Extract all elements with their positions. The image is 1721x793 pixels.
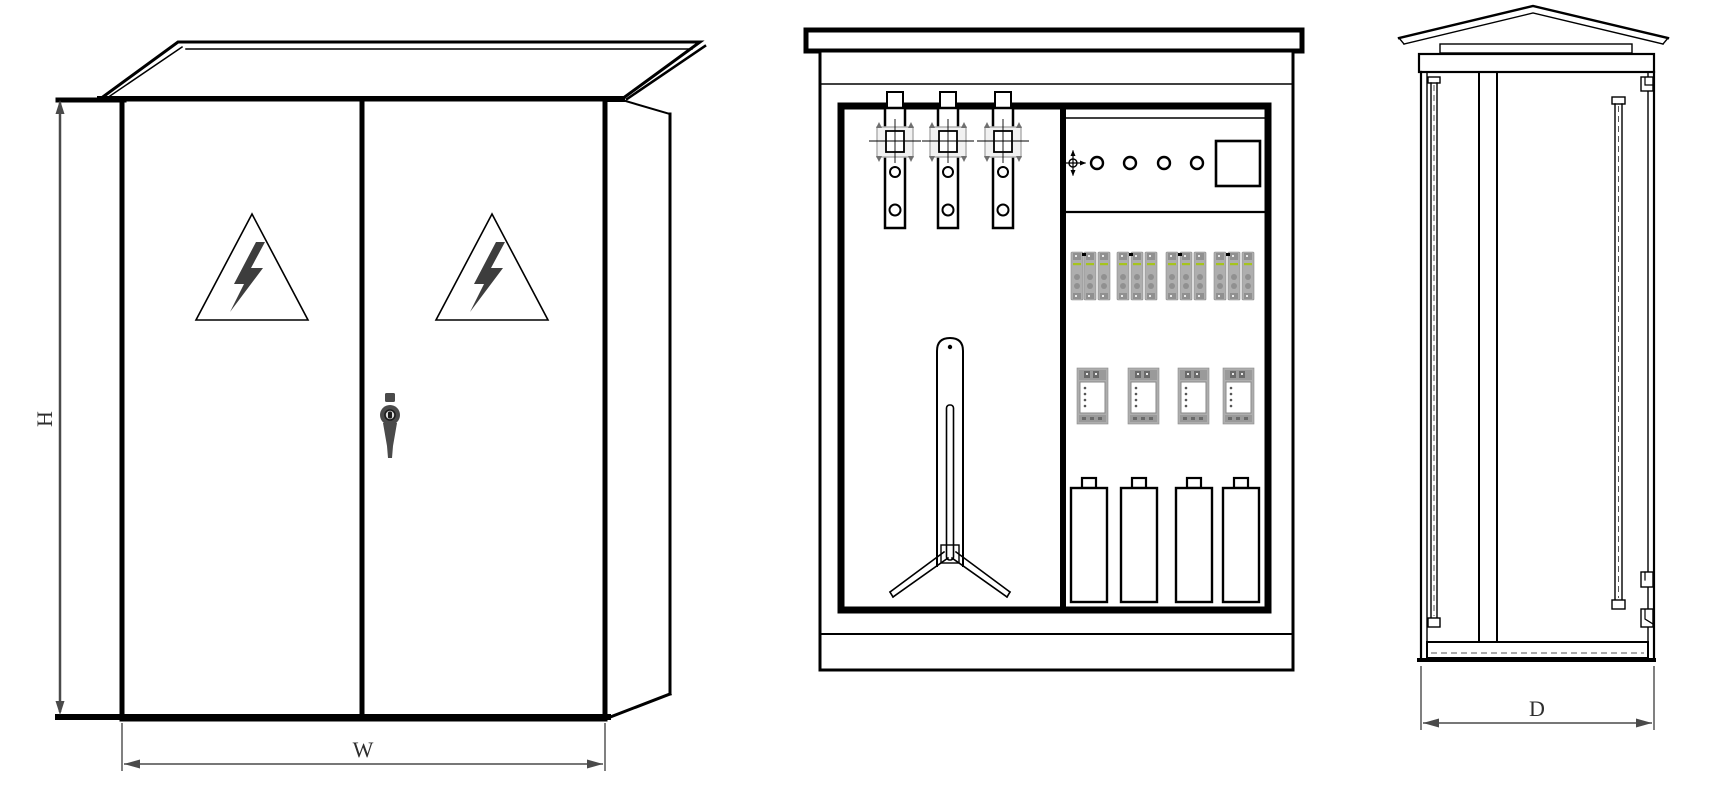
din-breaker [1194, 252, 1206, 300]
depth-dim-label: D [1529, 696, 1545, 721]
capacitor [1223, 478, 1259, 602]
din-breaker [1166, 252, 1178, 300]
drawing-canvas: H W [0, 0, 1721, 793]
side-top-plate [1440, 44, 1632, 53]
hinge [1641, 609, 1653, 627]
dimension-W: W [122, 723, 605, 771]
drawing-sheet: H W [0, 0, 1721, 793]
din-breaker [1084, 252, 1096, 300]
indicator-port [1091, 157, 1103, 169]
capacitor [1176, 478, 1212, 602]
height-dim-label: H [32, 411, 57, 427]
din-breaker [1242, 252, 1254, 300]
width-dim-label: W [353, 737, 374, 762]
din-breaker [1131, 252, 1143, 300]
indicator-port [1191, 157, 1203, 169]
side-door-panel-right [1612, 97, 1625, 609]
dimension-D: D [1421, 666, 1654, 730]
side-hinges [1641, 77, 1653, 627]
side-partition [1479, 72, 1497, 642]
capacitor [1121, 478, 1157, 602]
hinge [1641, 572, 1653, 587]
din-breaker [1214, 252, 1226, 300]
front-cabinet-body [58, 99, 608, 719]
front-roof [100, 42, 705, 99]
hinge [1641, 77, 1653, 91]
indicator-port [1124, 157, 1136, 169]
molded-case-breaker [1128, 368, 1159, 424]
din-breaker [1071, 252, 1083, 300]
meter-box [1216, 141, 1260, 186]
side-view: D [1399, 6, 1668, 730]
din-breaker [1145, 252, 1157, 300]
molded-case-breaker [1178, 368, 1209, 424]
side-walls [1421, 72, 1654, 660]
din-breaker [1180, 252, 1192, 300]
front-view: H W [32, 42, 705, 771]
side-door-panel-left [1428, 77, 1440, 627]
front-cabinet-side-panel [605, 100, 670, 719]
side-base [1419, 642, 1654, 660]
capacitor [1071, 478, 1107, 602]
side-roof [1399, 6, 1668, 72]
din-breaker [1098, 252, 1110, 300]
molded-case-breaker [1077, 368, 1108, 424]
din-breaker [1228, 252, 1240, 300]
din-breaker [1117, 252, 1129, 300]
dimension-H: H [32, 100, 65, 715]
internal-roof-cap [806, 30, 1302, 51]
indicator-port [1158, 157, 1170, 169]
side-cap-band [1419, 54, 1654, 72]
internal-view [806, 30, 1302, 670]
molded-case-breaker [1223, 368, 1254, 424]
